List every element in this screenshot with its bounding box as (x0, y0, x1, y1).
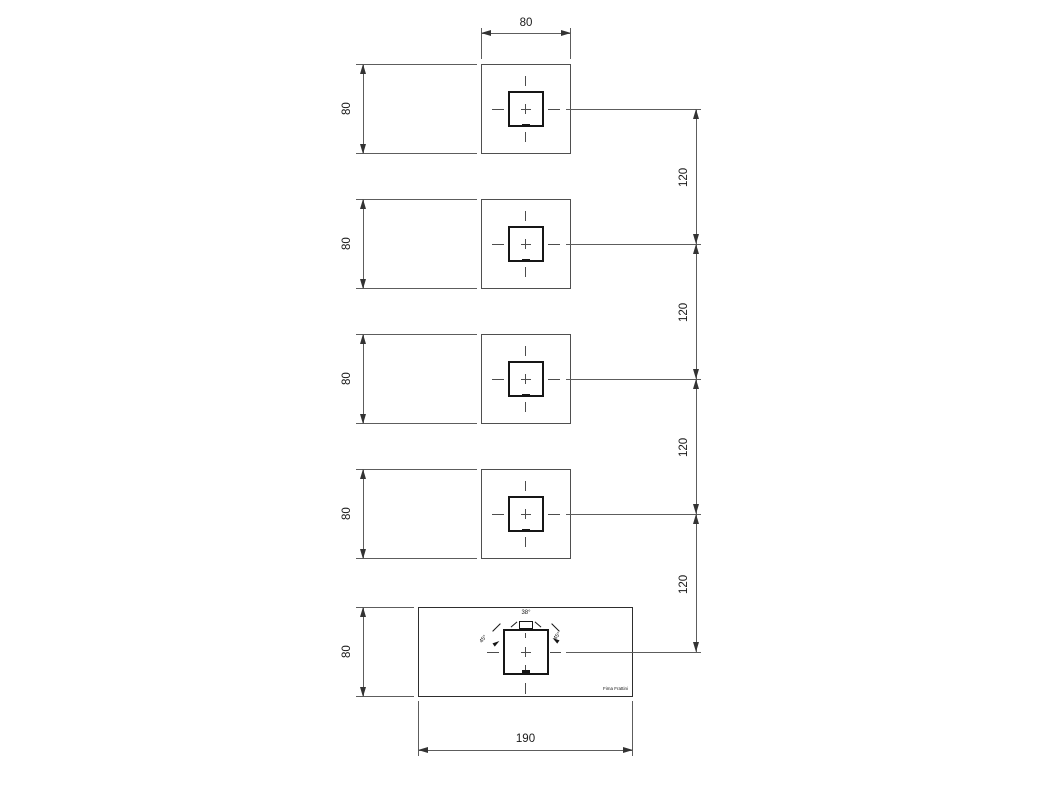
center-cross (525, 104, 526, 114)
angle-label-top: 38° (506, 610, 546, 616)
dim-label-spacing-4: 120 (677, 568, 691, 600)
centerline-dash (525, 537, 526, 547)
arrowhead-up (360, 334, 366, 344)
arrowhead-left (418, 747, 428, 753)
centerline-dash (525, 76, 526, 86)
centerline-dash (525, 683, 526, 694)
arrowhead-down (693, 369, 699, 379)
centerline-dash (548, 244, 560, 245)
arrowhead-down (360, 414, 366, 424)
dim-line-top-width (481, 33, 571, 34)
arrowhead-up (693, 109, 699, 119)
centerline-dash (525, 132, 526, 142)
dim-label-bottom-height: 80 (340, 638, 354, 666)
technical-drawing: 80 80 80 80 (0, 0, 1048, 786)
arrowhead-up (693, 379, 699, 389)
centerline-tick (525, 633, 526, 638)
dim-label-top-width: 80 (481, 18, 571, 30)
center-cross (521, 379, 531, 380)
center-cross (521, 109, 531, 110)
centerline-dash (492, 379, 504, 380)
knob-indicator-notch (522, 670, 530, 674)
dim-label-row4-height: 80 (340, 500, 354, 528)
center-cross (525, 374, 526, 384)
dim-label-spacing-2: 120 (677, 296, 691, 328)
ext-line (356, 199, 477, 200)
centerline-dash (525, 267, 526, 277)
leader-line (566, 109, 701, 110)
dim-line-bottom-height (363, 607, 364, 697)
centerline-dash (487, 652, 499, 653)
ext-line (356, 288, 477, 289)
arrowhead-down (360, 687, 366, 697)
arrowhead-up (360, 64, 366, 74)
arrowhead-up (360, 199, 366, 209)
arrowhead-left (481, 30, 491, 36)
leader-line (566, 379, 701, 380)
leader-line (566, 244, 701, 245)
ext-line (356, 423, 477, 424)
center-cross (521, 514, 531, 515)
brand-text: Fima Frattini (592, 687, 628, 692)
dim-label-bottom-width: 190 (418, 734, 633, 746)
ext-line (356, 64, 477, 65)
centerline-dash (525, 481, 526, 491)
ext-line (356, 469, 477, 470)
dim-label-spacing-3: 120 (677, 431, 691, 463)
centerline-dash (550, 652, 561, 653)
dim-label-row2-height: 80 (340, 230, 354, 258)
ext-line (356, 334, 477, 335)
centerline-dash (525, 346, 526, 356)
dim-label-row3-height: 80 (340, 365, 354, 393)
dim-label-spacing-1: 120 (677, 161, 691, 193)
safety-button-tab (519, 621, 533, 629)
arrowhead-up (693, 514, 699, 524)
leader-line (566, 652, 701, 653)
centerline-dash (548, 514, 560, 515)
center-cross (525, 509, 526, 519)
center-cross (525, 647, 526, 657)
center-cross (525, 239, 526, 249)
dim-line-row3-height (363, 334, 364, 424)
arrowhead-up (360, 607, 366, 617)
knob-indicator-notch (522, 124, 530, 127)
centerline-dash (492, 244, 504, 245)
arrowhead-down (360, 549, 366, 559)
arrowhead-down (693, 504, 699, 514)
center-cross (521, 244, 531, 245)
center-cross (521, 652, 531, 653)
arrowhead-up (693, 244, 699, 254)
centerline-dash (548, 379, 560, 380)
leader-line (566, 514, 701, 515)
arrowhead-right (623, 747, 633, 753)
centerline-dash (525, 211, 526, 221)
knob-indicator-notch (522, 394, 530, 397)
arrowhead-down (693, 234, 699, 244)
knob-indicator-notch (522, 259, 530, 262)
dim-line-row2-height (363, 199, 364, 289)
ext-line (356, 153, 477, 154)
knob-indicator-notch (522, 529, 530, 532)
arrowhead-down (360, 279, 366, 289)
arrowhead-down (360, 144, 366, 154)
dim-line-bottom-width (418, 750, 633, 751)
arrowhead-down (693, 642, 699, 652)
centerline-dash (492, 109, 504, 110)
centerline-dash (548, 109, 560, 110)
centerline-dash (492, 514, 504, 515)
arrowhead-up (360, 469, 366, 479)
ext-line (356, 558, 477, 559)
centerline-dash (525, 402, 526, 412)
arrowhead-right (561, 30, 571, 36)
dim-line-row4-height (363, 469, 364, 559)
dim-label-row1-height: 80 (340, 95, 354, 123)
dim-line-row1-height (363, 64, 364, 154)
